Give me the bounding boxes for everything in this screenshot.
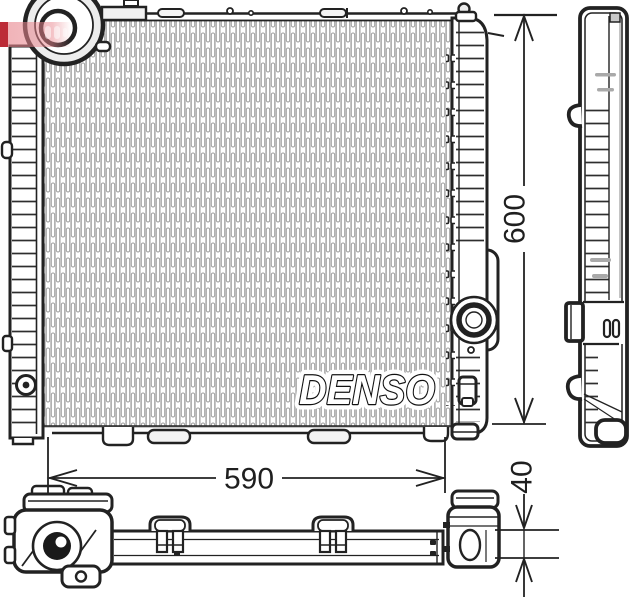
radiator-front-view: DENSO DENSO xyxy=(2,0,504,445)
bottom-left-connector xyxy=(5,486,112,587)
denso-brand-logo: DENSO DENSO xyxy=(299,366,435,413)
side-hook xyxy=(569,105,582,126)
right-tank xyxy=(446,4,498,440)
radiator-bottom-view xyxy=(5,486,499,587)
side-connector xyxy=(566,302,624,344)
radiator-technical-drawing: DENSO DENSO xyxy=(0,0,634,601)
watermark-logo xyxy=(0,22,71,47)
dimension-height: 600 xyxy=(492,15,557,424)
denso-logo-text: DENSO xyxy=(299,366,435,413)
side-hook-lower xyxy=(568,376,582,399)
radiator-side-view xyxy=(566,8,627,446)
dimension-depth-label: 40 xyxy=(506,460,539,493)
dimension-depth: 40 xyxy=(495,460,559,597)
watermark-pink-band xyxy=(8,22,71,47)
dimension-width-label: 590 xyxy=(224,463,274,496)
drawing-svg: DENSO DENSO xyxy=(0,0,634,601)
bottom-right-connector xyxy=(443,491,499,567)
left-tank xyxy=(2,46,43,444)
mount-lug xyxy=(3,336,12,351)
watermark-red-block xyxy=(0,22,8,47)
mount-lug xyxy=(2,142,12,158)
dimension-height-label: 600 xyxy=(499,194,532,244)
bottom-rail xyxy=(42,426,452,445)
